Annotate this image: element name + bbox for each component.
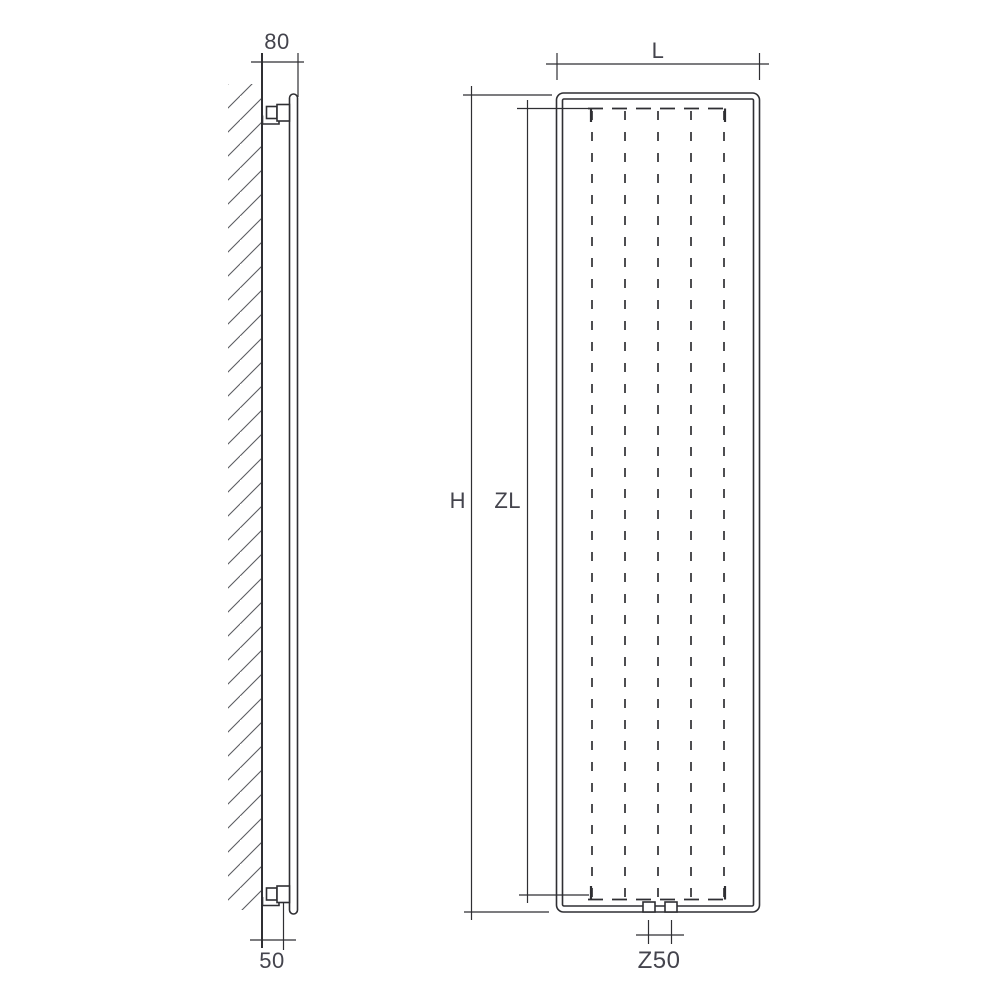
dim-Z50-label: Z50 (638, 947, 681, 974)
top-bracket-anchor (267, 107, 278, 119)
dim-80-label: 80 (264, 29, 289, 54)
connector-left (643, 902, 655, 912)
connector-right (665, 902, 677, 912)
dimension-50: 50 (250, 903, 296, 973)
side-view: 80 50 (228, 29, 304, 973)
bottom-bracket-clamp (277, 886, 290, 903)
wall-hatching (228, 84, 262, 910)
bottom-bracket (263, 886, 290, 906)
dimension-Z50: Z50 (636, 920, 684, 974)
radiator-side-panel (290, 94, 298, 914)
dim-H-label: H (450, 488, 466, 513)
dim-ZL-label: ZL (494, 488, 521, 513)
dimension-L: L (546, 38, 769, 80)
front-view: L H ZL Z50 (450, 38, 769, 974)
radiator-technical-drawing: 80 50 (0, 0, 1000, 1000)
dim-50-label: 50 (259, 948, 284, 973)
top-bracket-clamp (277, 105, 290, 122)
top-bracket (263, 105, 290, 125)
bottom-bracket-anchor (267, 888, 278, 900)
dim-L-label: L (652, 38, 665, 63)
